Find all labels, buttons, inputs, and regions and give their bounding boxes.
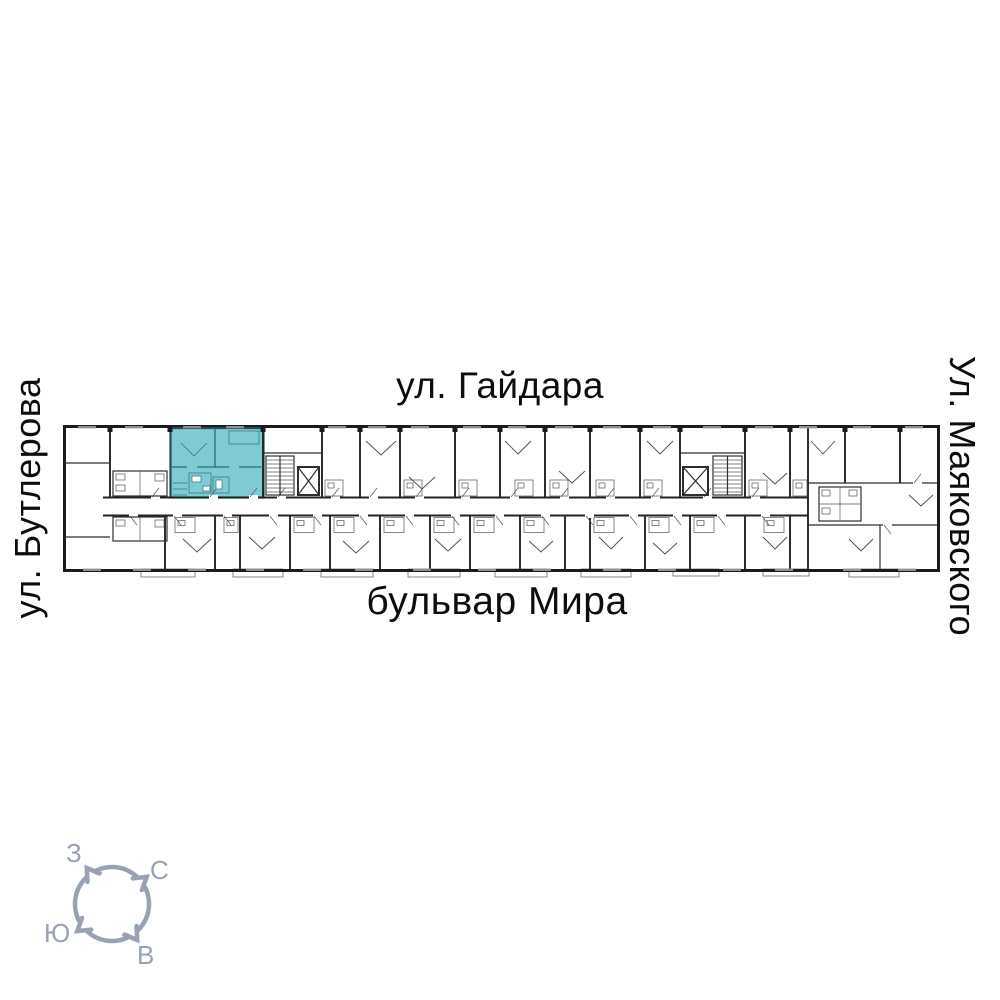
- compass-east-label: В: [137, 942, 154, 968]
- compass-south-label: Ю: [44, 920, 70, 946]
- compass-arrow-north: [133, 877, 147, 890]
- bathrooms-bottom: [175, 518, 784, 533]
- partitions-bottom: [165, 515, 790, 570]
- compass-north-label: С: [150, 857, 169, 883]
- street-label-right: Ул. Маяковского: [941, 356, 983, 636]
- floor-plan: [63, 425, 940, 580]
- compass-west-label: З: [66, 840, 82, 866]
- compass-arrow-south: [77, 918, 91, 931]
- street-label-left: ул. Бутлерова: [7, 377, 49, 618]
- street-label-bottom: бульвар Мира: [366, 580, 627, 624]
- left-corner-cluster: [65, 463, 167, 541]
- compass: З С Ю В: [40, 838, 200, 973]
- stair-elevator-core-2: [680, 453, 745, 495]
- compass-rose: [40, 838, 200, 973]
- floor-plan-container: [63, 425, 940, 580]
- stair-elevator-core-1: [263, 453, 322, 495]
- street-label-top: ул. Гайдара: [396, 365, 604, 407]
